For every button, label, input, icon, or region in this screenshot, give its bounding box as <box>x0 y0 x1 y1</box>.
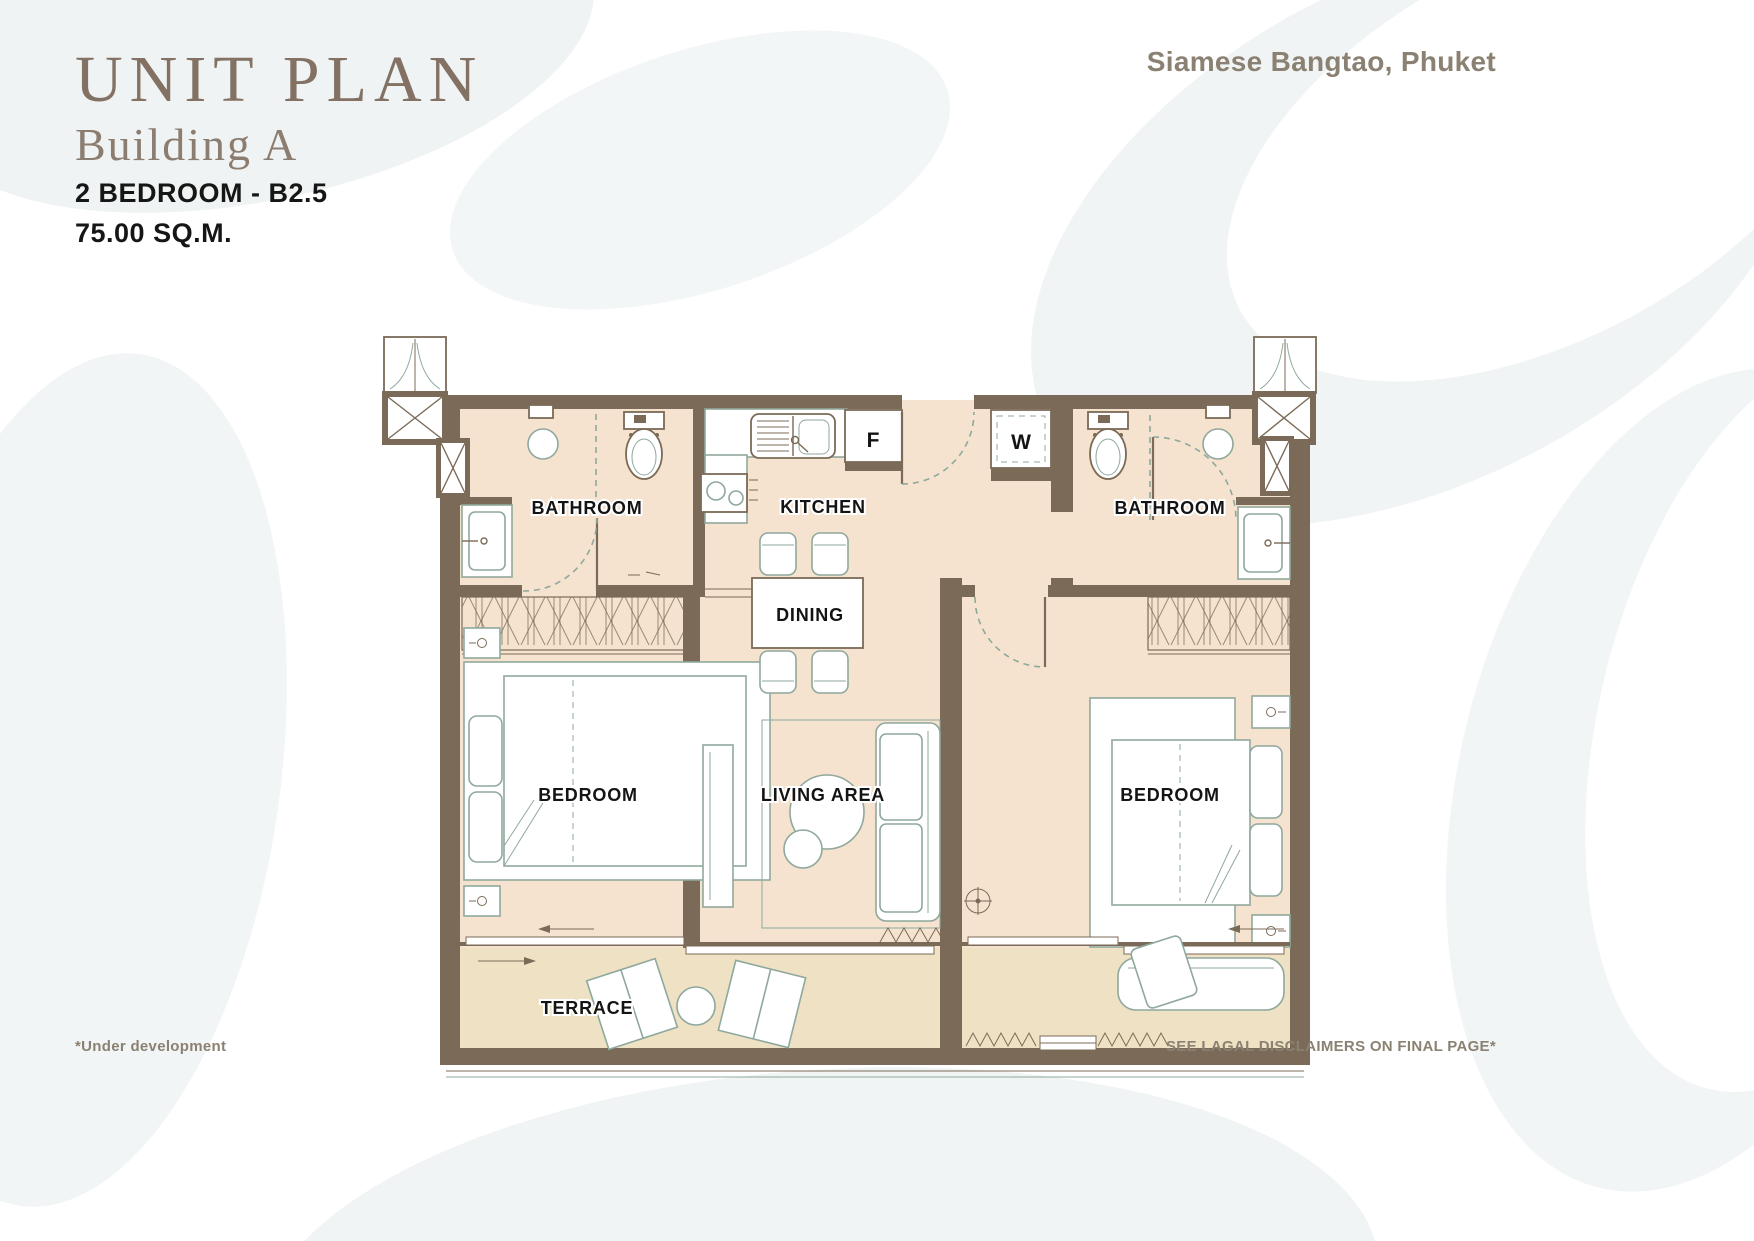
column-right <box>1260 436 1294 496</box>
room-label-bathroom-1: BATHROOM <box>531 498 642 518</box>
room-label-bathroom-2: BATHROOM <box>1114 498 1225 518</box>
wardrobe-2 <box>1148 597 1290 650</box>
room-label-bedroom-1: BEDROOM <box>538 785 638 805</box>
round-table-icon <box>677 987 715 1025</box>
project-name: Siamese Bangtao, Phuket <box>1147 46 1496 78</box>
unit-area: 75.00 SQ.M. <box>75 218 232 249</box>
side-table-icon <box>784 830 822 868</box>
footnote-left: *Under development <box>75 1038 226 1055</box>
room-label-bedroom-2: BEDROOM <box>1120 785 1220 805</box>
room-label-terrace: TERRACE <box>541 998 634 1018</box>
tv-console <box>703 745 733 907</box>
dining-chair-icon <box>812 533 848 575</box>
nightstand-icon <box>464 886 500 916</box>
unit-plan-sheet: BATHROOM KITCHEN DINING BATHROOM BEDROOM… <box>0 0 1754 1241</box>
column-left <box>436 438 470 498</box>
dining-chair-icon <box>760 533 796 575</box>
sofa-icon <box>876 723 940 921</box>
building-subtitle: Building A <box>75 118 298 171</box>
vanity-sink-icon <box>1236 497 1290 579</box>
corner-window-top-left <box>382 337 448 445</box>
nightstand-icon <box>464 628 500 658</box>
washer-label: W <box>1011 431 1031 454</box>
footnote-right: SEE LAGAL DISCLAIMERS ON FINAL PAGE* <box>1166 1038 1496 1055</box>
corner-window-top-right <box>1252 337 1316 445</box>
room-label-living-area: LIVING AREA <box>761 785 885 805</box>
toilet-icon <box>1088 412 1128 479</box>
room-label-kitchen: KITCHEN <box>780 497 866 517</box>
page-title: UNIT PLAN <box>75 42 483 118</box>
kitchen-sink-icon <box>751 414 835 458</box>
toilet-icon <box>624 412 664 479</box>
nightstand-icon <box>1252 696 1290 728</box>
dining-chair-icon <box>760 651 796 693</box>
fridge-label: F <box>867 429 880 452</box>
dining-chair-icon <box>812 651 848 693</box>
vanity-sink-icon <box>460 497 512 577</box>
unit-type: 2 BEDROOM - B2.5 <box>75 178 328 209</box>
room-label-dining: DINING <box>776 605 844 625</box>
